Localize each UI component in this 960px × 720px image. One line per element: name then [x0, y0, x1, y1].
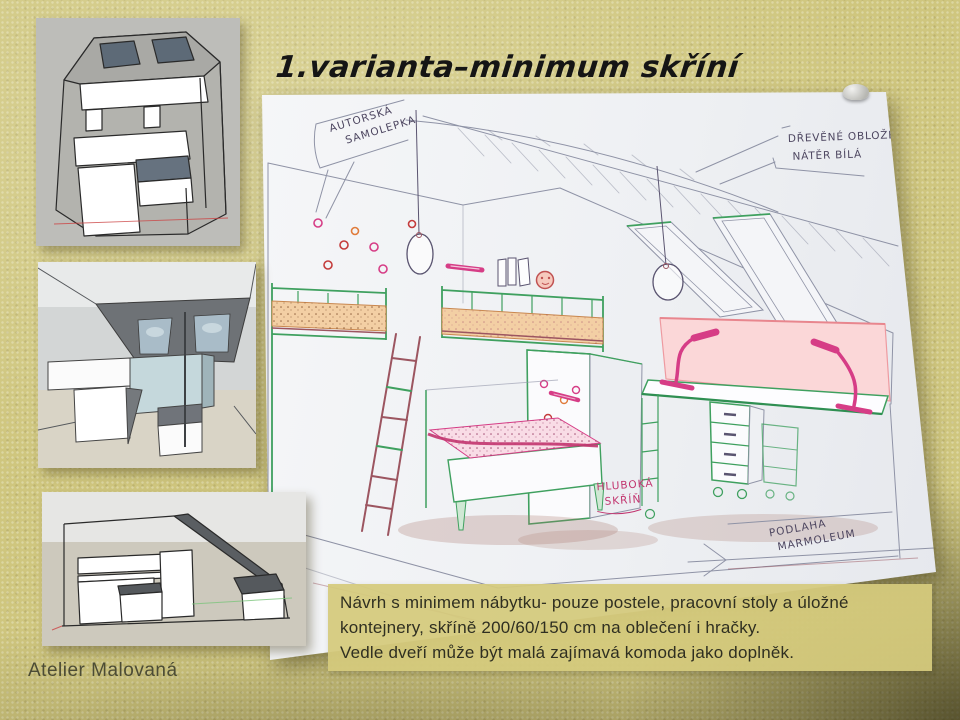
drawer-unit-left: [642, 394, 658, 519]
render-top-view-image: [36, 18, 240, 246]
room-sketch-drawing: AUTORSKÁ SAMOLEPKA DŘEVĚNÉ OBLOŽENÍ NÁTĚ…: [258, 88, 938, 663]
slide-title: 1.varianta–minimum skříní: [274, 50, 741, 85]
annotation-sticker: AUTORSKÁ SAMOLEPKA: [328, 98, 418, 151]
wall-shelf-rail: [448, 266, 482, 270]
caption-box: Návrh s minimem nábytku- pouze postele, …: [328, 584, 932, 671]
annotation-paneling-line1: DŘEVĚNÉ OBLOŽENÍ: [788, 128, 909, 145]
render-interior-image: [38, 262, 256, 468]
render-thumbnail-interior-view: [38, 262, 256, 468]
annotation-wardrobe-line2: SKŘÍŇ: [604, 492, 642, 508]
caption-line-2: kontejnery, skříně 200/60/150 cm na oble…: [340, 615, 920, 640]
books: [498, 258, 530, 286]
annotation-paneling: DŘEVĚNÉ OBLOŽENÍ NÁTĚR BÍLÁ: [788, 128, 909, 163]
slide-canvas: 1.varianta–minimum skříní: [0, 0, 960, 720]
sketch-paper: AUTORSKÁ SAMOLEPKA DŘEVĚNÉ OBLOŽENÍ NÁTĚ…: [258, 88, 938, 663]
desk-area: [642, 318, 890, 542]
drawer-unit-right: [762, 424, 798, 500]
drawer-unit-main: [710, 402, 764, 499]
ladder: [362, 334, 420, 535]
caption-line-1: Návrh s minimem nábytku- pouze postele, …: [340, 590, 920, 615]
wall-clock: [537, 272, 554, 289]
studio-name: Atelier Malovaná: [28, 660, 178, 682]
sketch-paper-sheet: AUTORSKÁ SAMOLEPKA DŘEVĚNÉ OBLOŽENÍ NÁTĚ…: [258, 88, 938, 663]
render-section-image: [42, 492, 306, 646]
render-thumbnail-top-view: [36, 18, 240, 246]
render-thumbnail-side-section: [42, 492, 306, 646]
annotation-paneling-line2: NÁTĚR BÍLÁ: [792, 147, 862, 162]
wall-decals: [314, 219, 416, 273]
caption-line-3: Vedle dveří může být malá zajímavá komod…: [340, 640, 920, 665]
paper-clip-tab: [843, 84, 869, 100]
